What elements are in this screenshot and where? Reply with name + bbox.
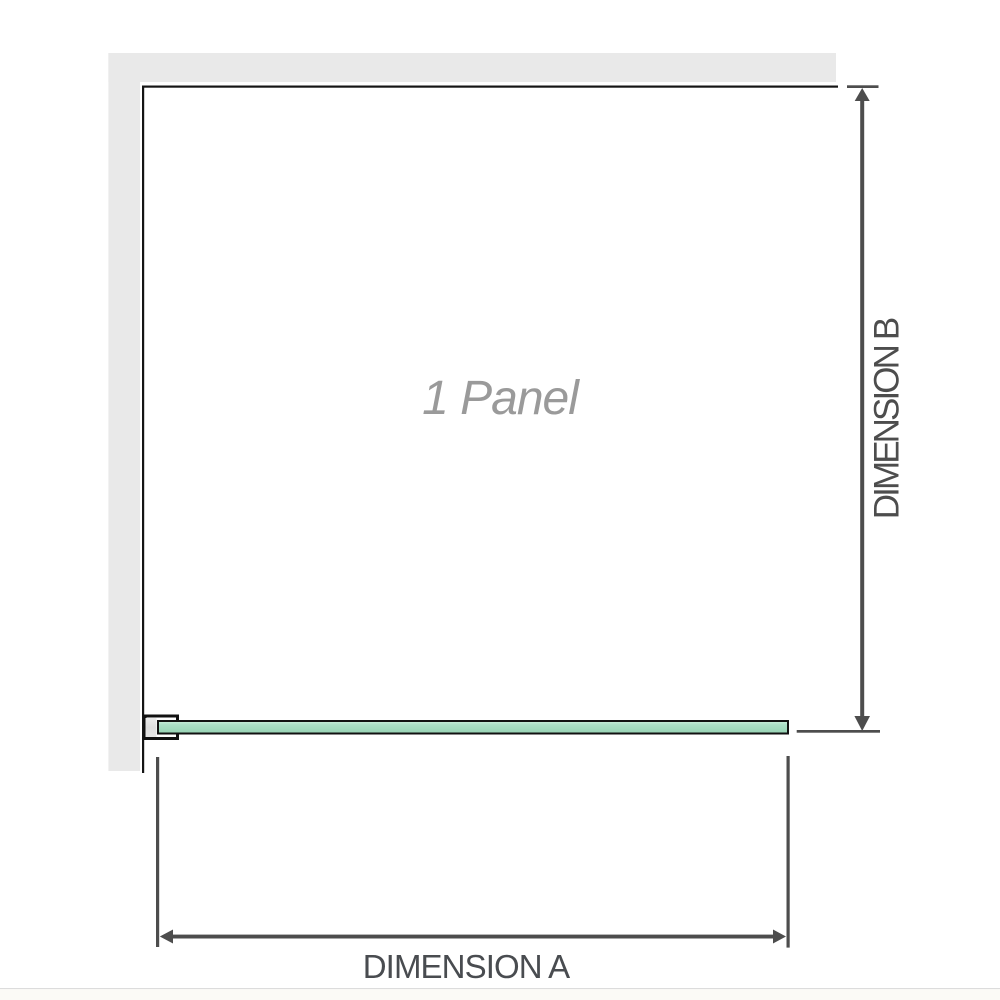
svg-text:1 Panel: 1 Panel xyxy=(422,372,580,425)
svg-text:DIMENSION B: DIMENSION B xyxy=(868,318,907,519)
svg-text:DIMENSION A: DIMENSION A xyxy=(363,948,570,985)
